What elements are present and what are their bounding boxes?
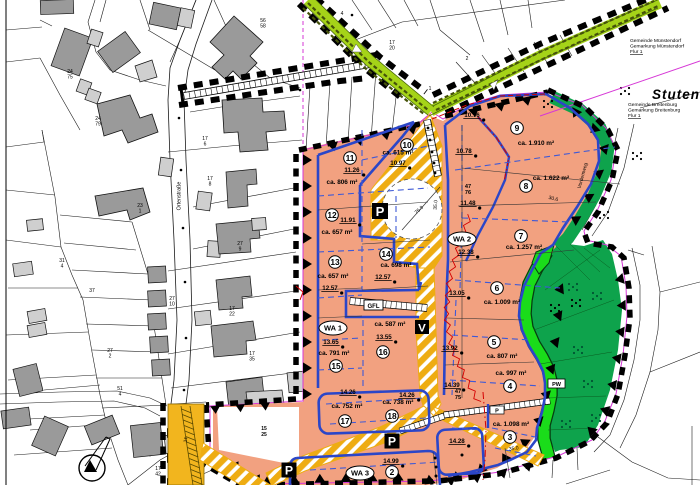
svg-text:6: 6 [495, 283, 500, 293]
svg-text:Flur 1: Flur 1 [628, 113, 641, 119]
svg-text:ca. 615 m²: ca. 615 m² [383, 150, 414, 157]
svg-text:ca. 806 m²: ca. 806 m² [327, 179, 358, 186]
svg-text:35: 35 [249, 357, 255, 363]
svg-text:4: 4 [508, 381, 513, 391]
svg-text:WA 1: WA 1 [324, 324, 342, 333]
svg-text:7: 7 [519, 231, 524, 241]
svg-text:1: 1 [429, 86, 432, 92]
svg-text:ca. 1.910 m²: ca. 1.910 m² [518, 140, 554, 147]
svg-text:22: 22 [229, 312, 235, 318]
svg-text:12: 12 [327, 210, 337, 220]
svg-text:ca. 752 m²: ca. 752 m² [332, 403, 363, 410]
svg-text:5: 5 [492, 337, 497, 347]
svg-text:13.05: 13.05 [449, 290, 465, 297]
svg-text:ca. 1.098 m²: ca. 1.098 m² [493, 421, 529, 428]
svg-text:12.57: 12.57 [322, 285, 338, 292]
svg-text:10: 10 [169, 302, 175, 308]
svg-text:79: 79 [95, 122, 101, 128]
svg-text:75: 75 [455, 395, 461, 401]
svg-text:3: 3 [508, 432, 513, 442]
svg-text:25: 25 [261, 432, 267, 438]
svg-text:Gemeinde Breitenburg: Gemeinde Breitenburg [628, 102, 677, 108]
svg-text:14.39: 14.39 [444, 382, 460, 389]
svg-text:20: 20 [389, 46, 395, 52]
svg-text:Gemarkung Breitenburg: Gemarkung Breitenburg [628, 108, 680, 114]
svg-text:4: 4 [119, 392, 122, 398]
svg-text:10.97: 10.97 [390, 160, 406, 167]
svg-text:8: 8 [524, 181, 529, 191]
svg-text:4: 4 [341, 11, 344, 17]
svg-text:Flur 1: Flur 1 [630, 49, 643, 55]
svg-text:ca. 791 m²: ca. 791 m² [319, 350, 350, 357]
svg-text:2: 2 [109, 354, 112, 360]
svg-text:12.38: 12.38 [458, 249, 474, 256]
svg-text:Gemeinde Münstendorf: Gemeinde Münstendorf [630, 38, 682, 44]
svg-text:14.26: 14.26 [399, 392, 415, 399]
svg-text:15: 15 [331, 361, 341, 371]
svg-text:10.76: 10.76 [464, 112, 480, 119]
svg-text:75: 75 [67, 75, 73, 81]
svg-text:ca. 1.257 m²: ca. 1.257 m² [506, 244, 542, 251]
svg-text:PW: PW [552, 382, 562, 388]
svg-text:18: 18 [387, 411, 397, 421]
svg-text:17: 17 [340, 416, 350, 426]
svg-text:4: 4 [61, 264, 64, 270]
svg-text:ca. 807 m²: ca. 807 m² [487, 353, 518, 360]
svg-text:14.26: 14.26 [340, 389, 356, 396]
svg-text:ca. 698 m²: ca. 698 m² [381, 262, 412, 269]
svg-text:Gemarkung Münstendorf: Gemarkung Münstendorf [630, 44, 685, 50]
svg-text:2: 2 [466, 56, 469, 62]
svg-text:Ortenstraße: Ortenstraße [177, 182, 183, 211]
svg-text:1: 1 [139, 209, 142, 215]
svg-text:11.26: 11.26 [344, 167, 360, 174]
svg-text:P: P [495, 409, 499, 415]
svg-text:11.48: 11.48 [460, 200, 476, 207]
svg-text:13: 13 [330, 257, 340, 267]
svg-text:11.91: 11.91 [340, 217, 356, 224]
svg-text:14.99: 14.99 [383, 458, 399, 465]
svg-text:WA 2: WA 2 [453, 235, 471, 244]
svg-text:76: 76 [465, 190, 471, 196]
svg-text:13.55: 13.55 [376, 334, 392, 341]
svg-text:WA 3: WA 3 [351, 469, 369, 478]
svg-text:V: V [418, 322, 426, 334]
svg-text:P: P [376, 204, 385, 219]
svg-text:14: 14 [381, 249, 391, 259]
svg-text:P: P [285, 464, 293, 478]
svg-text:ca. 997 m²: ca. 997 m² [496, 370, 527, 377]
svg-text:16: 16 [378, 347, 388, 357]
svg-text:ca. 657 m²: ca. 657 m² [318, 273, 349, 280]
svg-text:14.28: 14.28 [449, 438, 465, 445]
svg-text:ca. 657 m²: ca. 657 m² [322, 229, 353, 236]
svg-text:13.65: 13.65 [323, 339, 339, 346]
svg-text:13.92: 13.92 [442, 345, 458, 352]
svg-text:Stuten: Stuten [652, 87, 700, 102]
svg-text:8: 8 [209, 182, 212, 188]
svg-text:58: 58 [260, 24, 266, 30]
svg-text:ca. 587 m²: ca. 587 m² [375, 321, 406, 328]
svg-text:ca. 738 m²: ca. 738 m² [383, 399, 414, 406]
svg-text:35.0: 35.0 [433, 200, 440, 210]
svg-text:P: P [388, 435, 396, 449]
svg-text:6: 6 [204, 142, 207, 148]
svg-text:12.57: 12.57 [375, 274, 391, 281]
svg-text:ca. 1.622 m²: ca. 1.622 m² [533, 175, 569, 182]
svg-text:ca. 1.009 m²: ca. 1.009 m² [484, 299, 520, 306]
svg-text:11: 11 [346, 153, 355, 163]
svg-text:42: 42 [155, 472, 161, 478]
svg-text:9: 9 [239, 247, 242, 253]
svg-text:10.78: 10.78 [456, 148, 472, 155]
svg-text:GFL: GFL [368, 304, 380, 310]
svg-text:9: 9 [515, 123, 520, 133]
svg-text:2: 2 [390, 467, 395, 477]
svg-text:37: 37 [89, 288, 95, 294]
